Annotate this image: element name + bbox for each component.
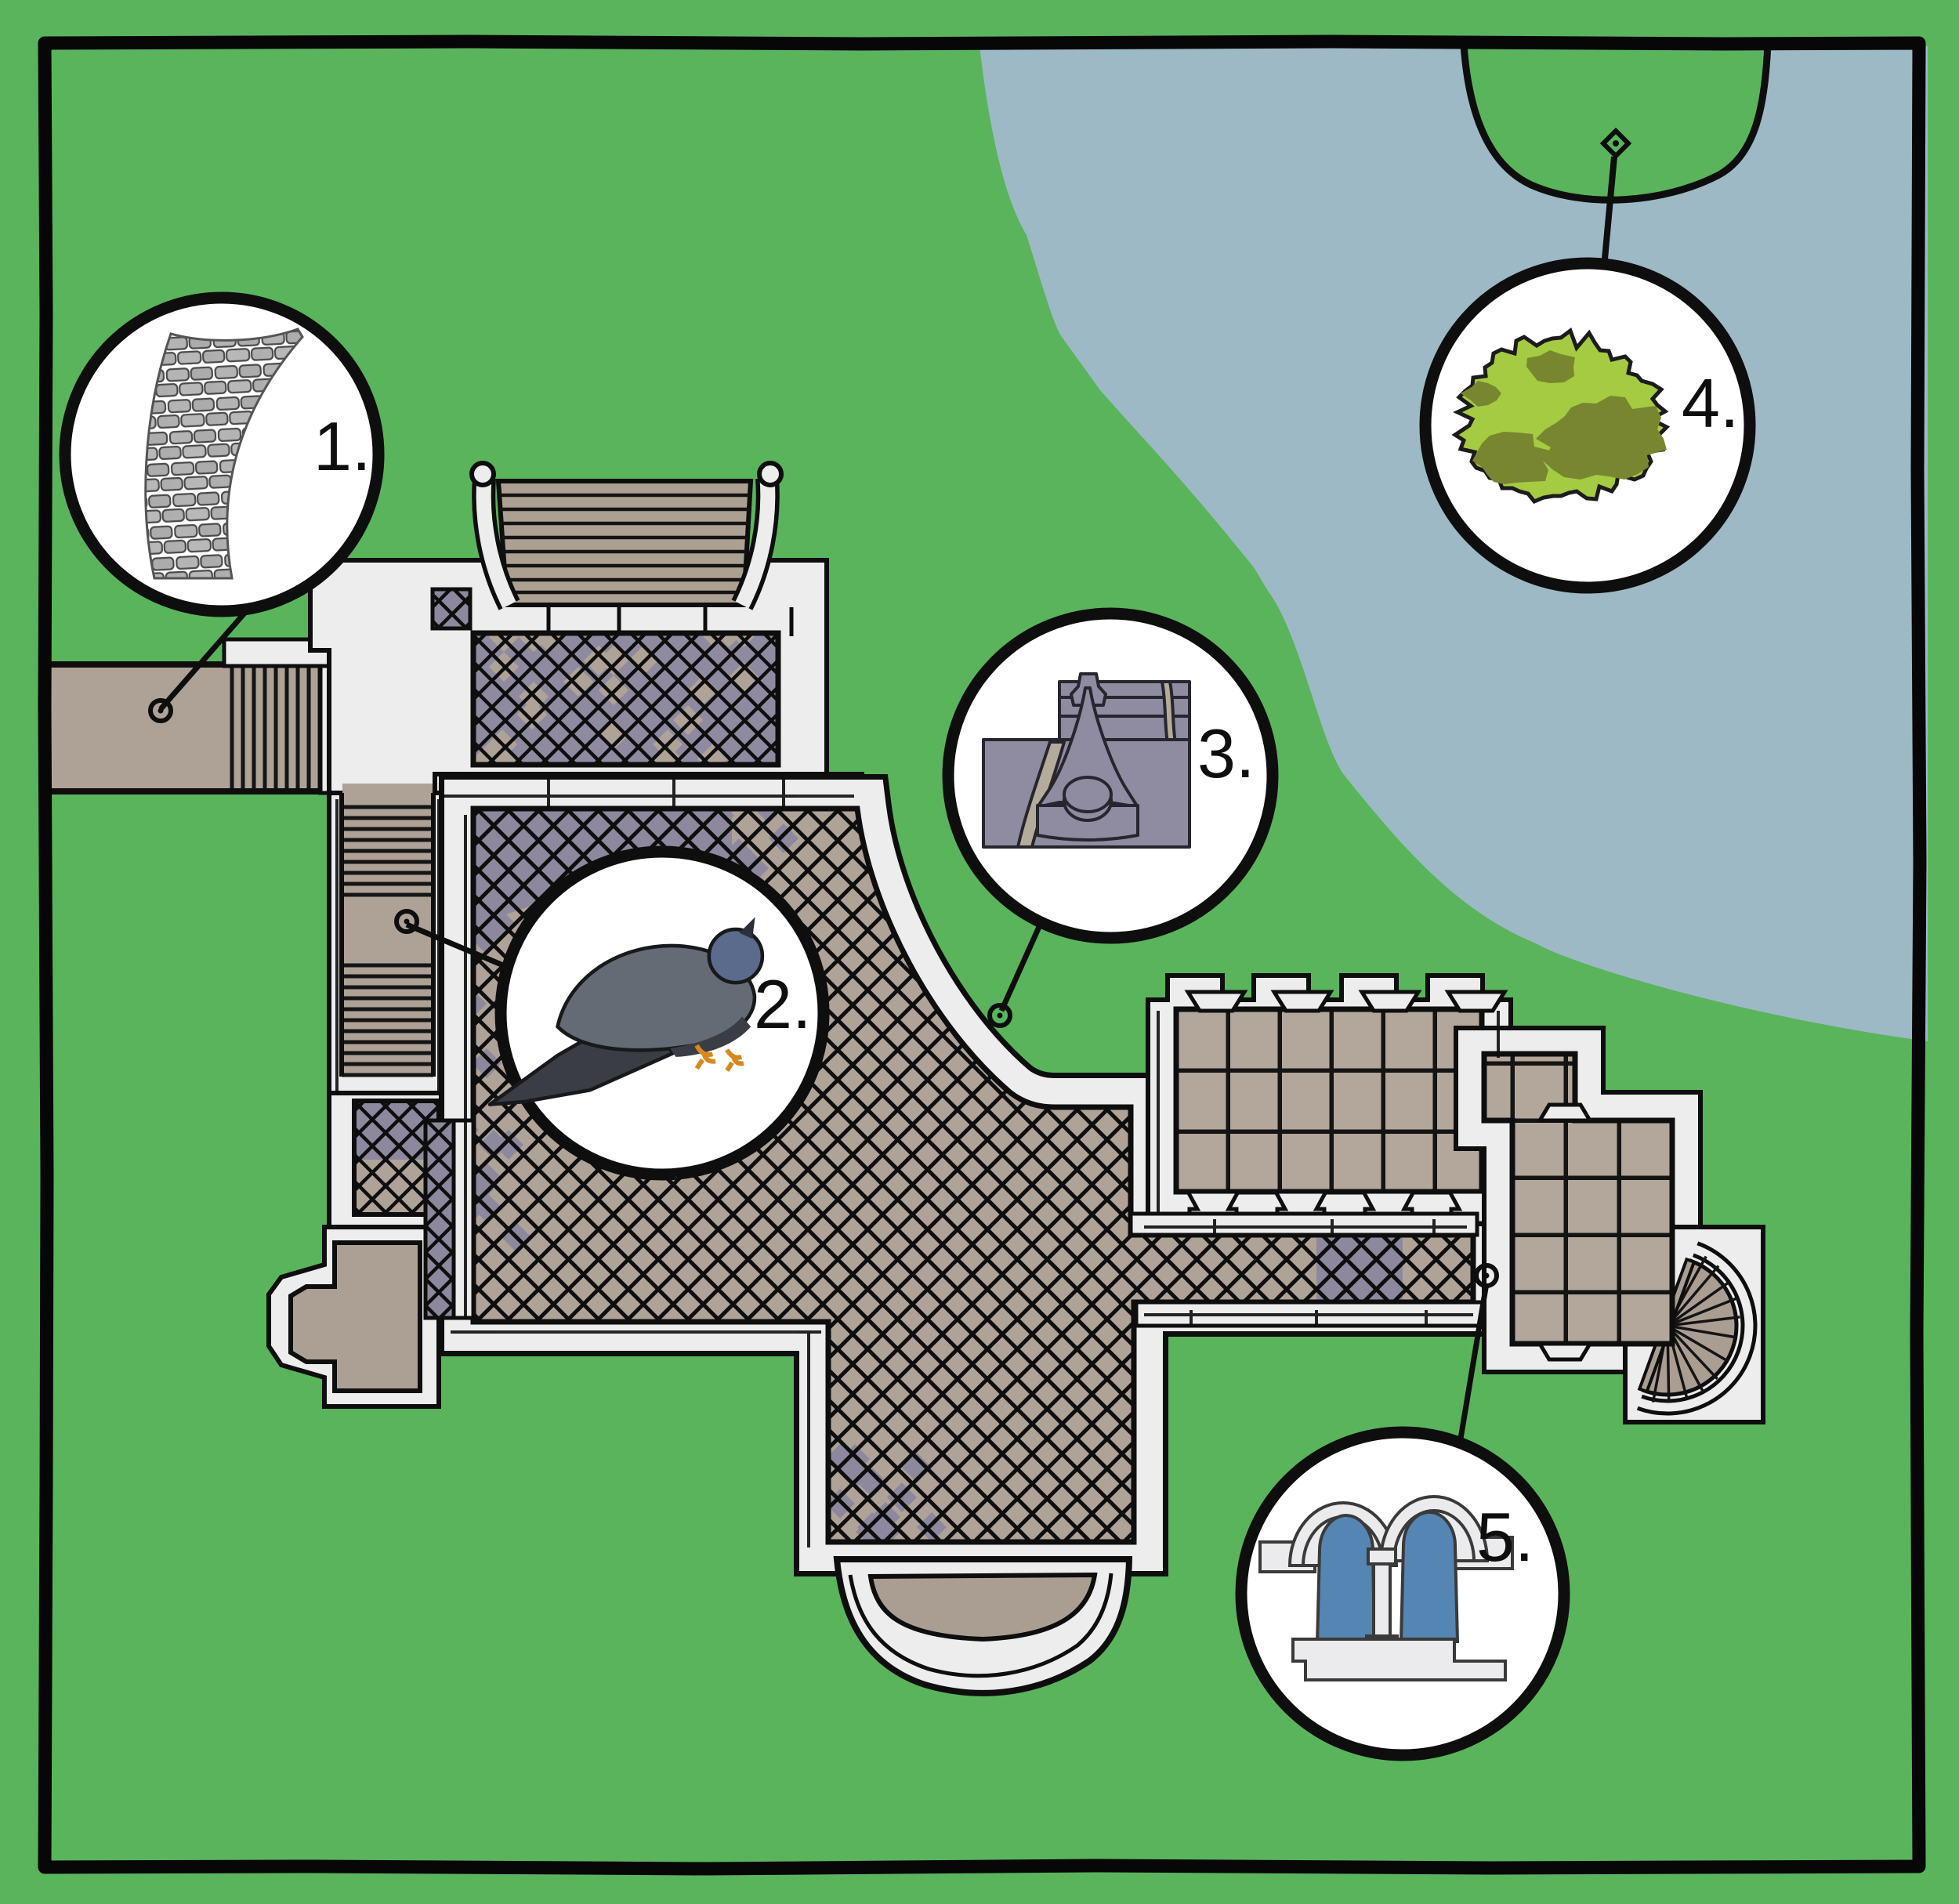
svg-text:4.: 4. (1682, 364, 1739, 442)
svg-text:3.: 3. (1197, 715, 1255, 792)
svg-text:2.: 2. (754, 965, 811, 1043)
svg-text:1.: 1. (313, 407, 371, 485)
svg-text:5.: 5. (1476, 1498, 1534, 1576)
